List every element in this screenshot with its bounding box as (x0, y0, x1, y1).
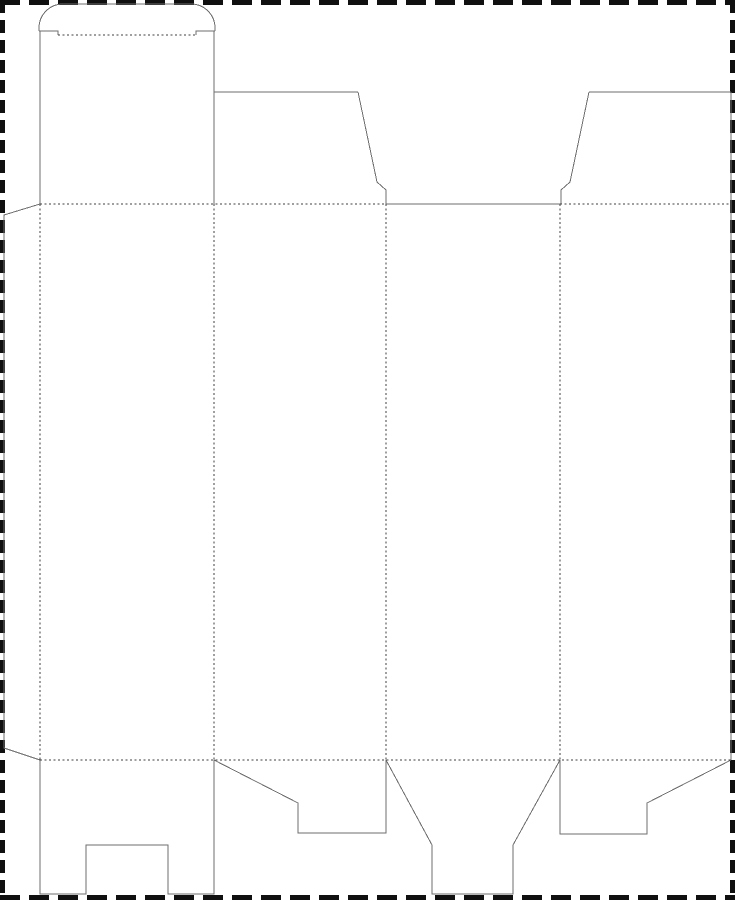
tuck-flap-rounded-top (39, 4, 215, 31)
bottom-flap-right-slant-outline (560, 760, 731, 834)
dieline-drawing (0, 0, 735, 900)
bottom-tuck-funnel-outline (386, 760, 560, 894)
dieline-sheet (0, 0, 735, 900)
glue-flap-outline (4, 204, 40, 760)
bottom-flap-notched-outline (40, 760, 214, 894)
bottom-flap-left-slant-outline (214, 760, 386, 833)
dust-flap-right-slant-edge (561, 92, 589, 204)
dust-flap-left-slant-edge (358, 92, 386, 204)
tuck-flap-right-shoulder-cut (196, 31, 215, 35)
tuck-flap-left-shoulder-cut (39, 31, 58, 35)
